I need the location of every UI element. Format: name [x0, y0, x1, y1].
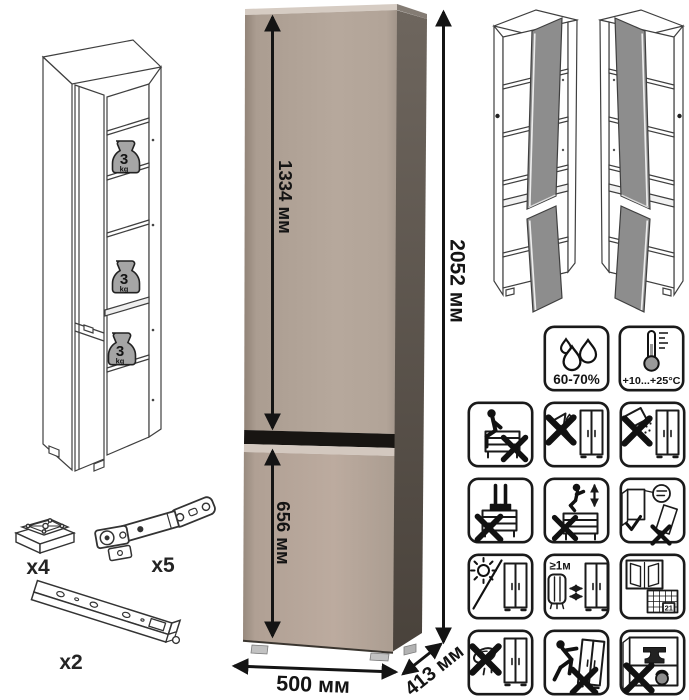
load-unit: kg [116, 357, 125, 366]
humidity-box: 60-70% [545, 327, 608, 390]
care-icon-no-standing [469, 479, 532, 542]
door-swing-right-cabinet [600, 10, 683, 312]
dim-label-upper-door: 1334 мм [275, 160, 296, 234]
hardware-rail [31, 576, 185, 646]
rail-count-label: x2 [59, 651, 82, 674]
lower-door [243, 452, 394, 652]
care-icon-no-sitting [469, 403, 532, 466]
door-swing-left-cabinet [494, 10, 577, 312]
calendar-day: 21 [665, 604, 673, 613]
sun-icon [471, 558, 496, 583]
dim-label-total-height: 2052 мм [445, 239, 468, 323]
kettlebell-icon [656, 671, 668, 685]
foot-count-label: x4 [26, 556, 50, 579]
exploded-shelf-cabinet [43, 40, 161, 471]
cabinet-side-face [392, 10, 427, 652]
care-icon-no-overloading [621, 631, 684, 694]
heater-distance-label: ≥1м [550, 561, 571, 573]
spec-canvas: 3 kg 3 kg 3 kg [0, 0, 689, 700]
temperature-box: +10...+25°C [620, 327, 683, 390]
dim-label-lower-door: 656 мм [273, 501, 294, 564]
window-icon [627, 561, 663, 589]
care-icon-no-solvent-cleaning [545, 403, 608, 466]
care-icon-assemble-upright-check [621, 479, 684, 544]
care-icon-ventilate-room: 21 [621, 555, 684, 618]
care-icon-no-abrasive-cleaning [621, 403, 684, 466]
dim-label-width: 500 мм [276, 671, 350, 698]
load-unit: kg [120, 165, 129, 174]
hinge-count-label: x5 [151, 554, 175, 577]
hardware-foot-glide [16, 519, 74, 553]
upper-door [244, 10, 397, 434]
radiator-icon [549, 575, 566, 609]
dim-arrow-width [234, 666, 396, 672]
care-icon-keep-1m-from-heaters: ≥1м [545, 555, 608, 618]
hardware-hinge [95, 495, 217, 560]
temperature-range: +10...+25°C [623, 376, 682, 387]
calendar-icon: 21 [648, 591, 678, 613]
care-icon-no-dragging [545, 631, 608, 694]
load-unit: kg [120, 285, 129, 294]
humidity-range: 60-70% [553, 372, 600, 387]
care-icon-no-jumping [545, 479, 608, 542]
care-icon-no-wet-cloth [469, 631, 532, 694]
care-grid: ≥1м [469, 403, 684, 694]
main-cabinet-render [243, 4, 427, 661]
product-spec-sheet: 3 kg 3 kg 3 kg [0, 0, 689, 700]
care-icon-avoid-direct-sunlight [469, 555, 532, 618]
